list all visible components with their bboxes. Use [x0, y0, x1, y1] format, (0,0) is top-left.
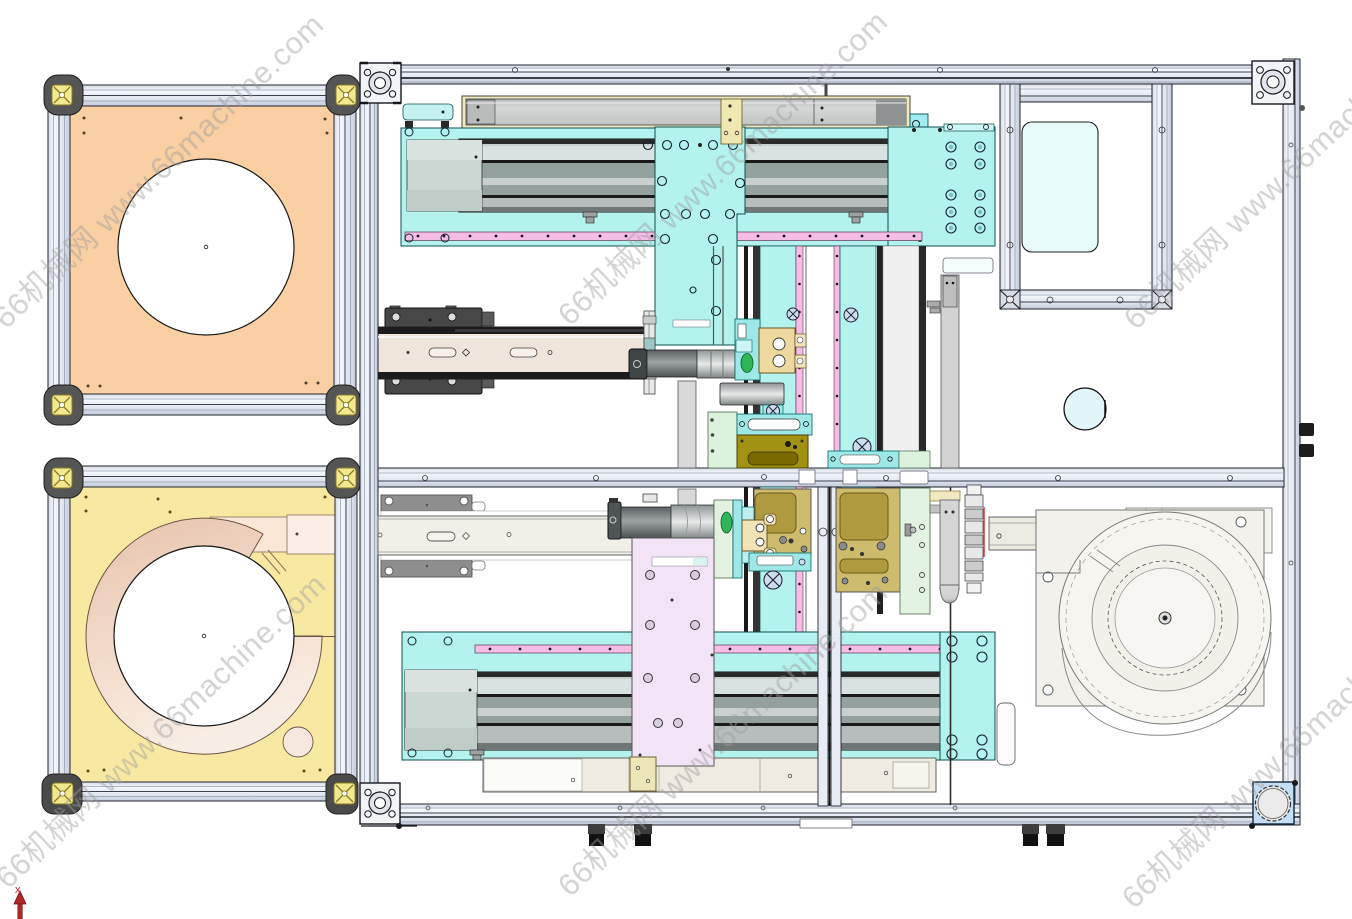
svg-text:x: x — [15, 884, 21, 896]
